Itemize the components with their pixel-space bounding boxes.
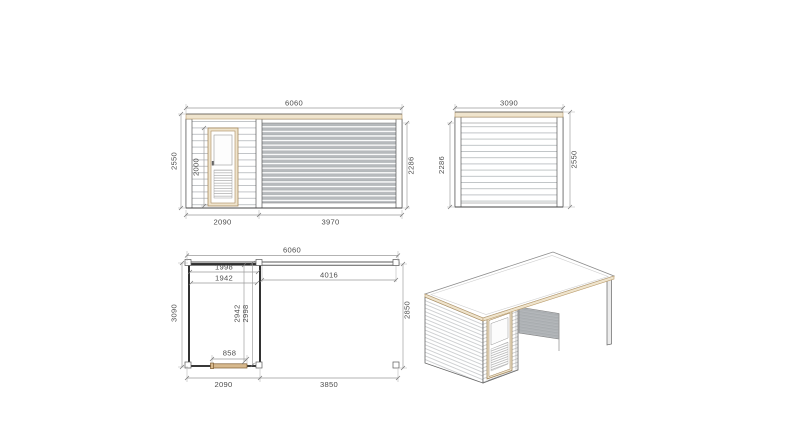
side-roof-fascia xyxy=(455,112,563,117)
dim-label: 3090 xyxy=(170,304,179,322)
side-building xyxy=(455,112,563,207)
perspective-view xyxy=(405,245,650,400)
side-left-post xyxy=(455,117,461,207)
front-building xyxy=(186,114,402,208)
front-door xyxy=(208,128,238,206)
front-elevation-view: 6060 2550 2000 2286 2090 3970 xyxy=(165,90,420,232)
front-dim-total-width: 6060 xyxy=(184,99,404,115)
plan-door-leaf xyxy=(212,364,247,368)
front-roof-fascia xyxy=(186,114,402,119)
dim-label: 2000 xyxy=(192,158,201,176)
plan-post xyxy=(256,260,262,266)
floor-plan-view: 6060 1998 1942 4016 3090 2942 xyxy=(165,242,427,394)
plan-post xyxy=(393,362,399,368)
plan-dim-bottom: 2090 3850 xyxy=(185,369,400,389)
dim-label: 2550 xyxy=(170,152,179,170)
plan-dim-door-width: 858 xyxy=(210,349,249,364)
dim-label: 2998 xyxy=(241,305,250,323)
iso-cabin xyxy=(425,252,614,383)
front-dim-bottom: 2090 3970 xyxy=(184,210,404,227)
plan-post xyxy=(256,362,262,368)
dim-label: 2286 xyxy=(437,156,446,174)
dim-label: 2286 xyxy=(407,157,416,175)
plan-door-hinge xyxy=(211,363,214,369)
plan-dim-total-width: 6060 xyxy=(185,246,400,262)
dim-label: 6060 xyxy=(283,246,301,255)
front-middle-post xyxy=(256,119,262,208)
dim-label: 3090 xyxy=(500,99,518,108)
side-dim-total-width: 3090 xyxy=(453,99,565,113)
plan-dim-inner-depth-outer: 2998 xyxy=(241,261,255,367)
front-slat-section xyxy=(262,123,396,203)
dim-label: 6060 xyxy=(285,99,303,108)
side-right-post xyxy=(557,117,563,207)
side-siding xyxy=(461,123,557,203)
door-window xyxy=(214,135,232,165)
dim-label: 3850 xyxy=(320,380,338,389)
drawing-canvas: 6060 2550 2000 2286 2090 3970 xyxy=(0,0,794,446)
door-louvers xyxy=(214,170,232,198)
iso-slat-screen xyxy=(519,307,559,339)
dim-label: 3970 xyxy=(322,218,340,227)
side-dim-height-total: 2550 xyxy=(563,110,579,209)
dim-label: 2090 xyxy=(214,218,232,227)
iso-corner-post xyxy=(607,277,612,345)
side-dim-wall-height: 2286 xyxy=(437,121,455,209)
front-dim-wall-height: 2286 xyxy=(402,121,416,210)
dim-label: 2550 xyxy=(570,151,579,169)
dim-label: 2090 xyxy=(215,380,233,389)
side-elevation-view: 3090 2286 2550 xyxy=(430,90,588,232)
door-handle xyxy=(212,161,214,166)
plan-dim-depth-left: 3090 xyxy=(170,261,189,369)
dim-label: 1942 xyxy=(215,274,233,283)
dim-label: 1998 xyxy=(215,263,233,272)
iso-door xyxy=(487,310,512,381)
front-dim-height-total: 2550 xyxy=(170,112,187,210)
dim-label: 858 xyxy=(223,349,236,358)
plan-post xyxy=(185,260,191,266)
dim-label: 4016 xyxy=(320,271,338,280)
plan-dim-inner-width: 1942 xyxy=(189,274,259,286)
plan-dim-terrace-opening: 4016 xyxy=(260,266,398,282)
front-right-post xyxy=(396,119,402,208)
